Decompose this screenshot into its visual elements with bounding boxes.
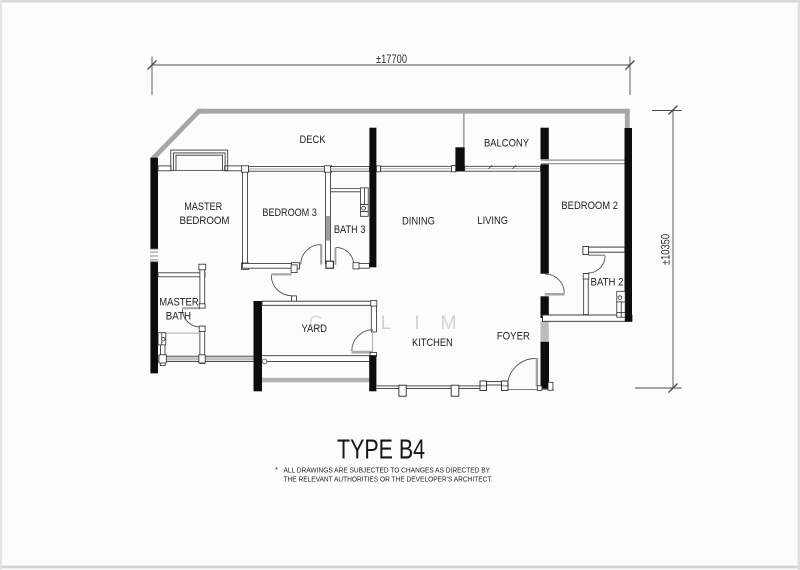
svg-text:L: L [381,312,392,334]
svg-text:DINING: DINING [402,216,435,228]
svg-text:M: M [440,312,456,334]
svg-text:YARD: YARD [301,323,327,335]
svg-text:THE RELEVANT AUTHORITIES OR TH: THE RELEVANT AUTHORITIES OR THE DEVELOPE… [284,475,493,484]
svg-text:FOYER: FOYER [497,330,530,342]
svg-text:BEDROOM 3: BEDROOM 3 [262,207,316,219]
svg-text:BATH 3: BATH 3 [334,224,366,236]
svg-text:MASTER: MASTER [184,201,222,213]
svg-text:BATH: BATH [166,311,191,323]
svg-text:DECK: DECK [300,134,327,146]
svg-text:BATH 2: BATH 2 [591,277,624,289]
svg-text:*: * [275,465,278,474]
svg-text:BEDROOM 2: BEDROOM 2 [561,200,618,212]
svg-text:KITCHEN: KITCHEN [412,337,453,349]
svg-text:LIVING: LIVING [477,215,508,227]
svg-text:MASTER: MASTER [159,296,198,308]
svg-text:±17700: ±17700 [376,52,407,66]
svg-text:BEDROOM: BEDROOM [180,215,230,227]
svg-text:I: I [414,312,419,334]
svg-text:ALL DRAWINGS ARE SUBJECTED TO: ALL DRAWINGS ARE SUBJECTED TO CHANGES AS… [284,466,491,475]
svg-text:TYPE B4: TYPE B4 [337,434,425,465]
svg-text:BALCONY: BALCONY [484,138,530,150]
svg-text:±10350: ±10350 [658,234,672,265]
